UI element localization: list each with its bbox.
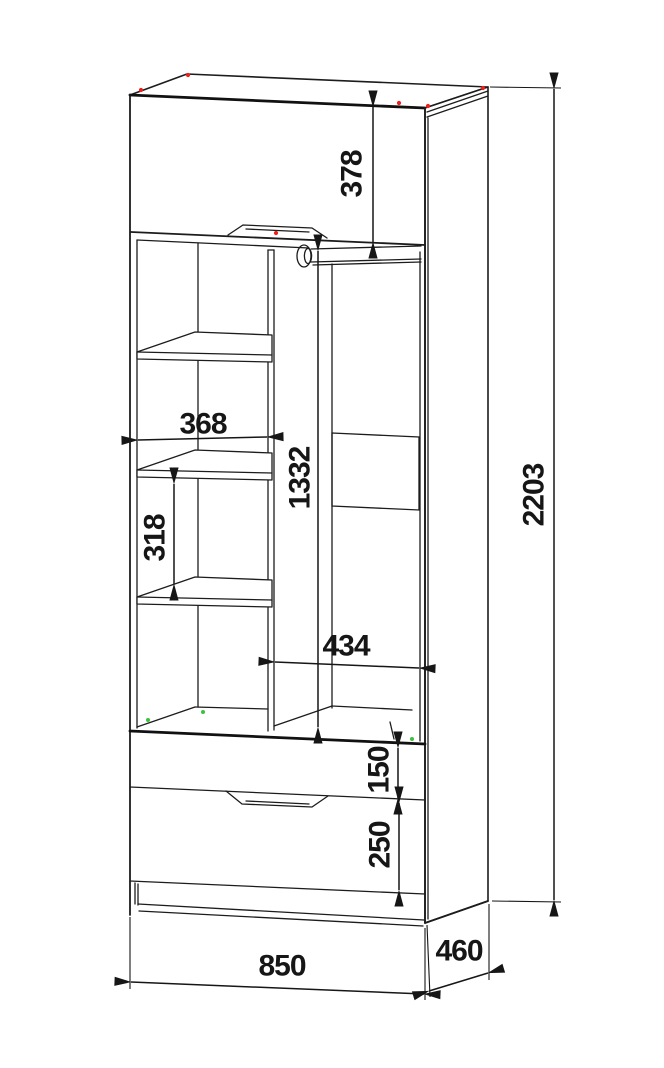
floor-left-back-edge (195, 707, 268, 709)
dim-shelf-width-label: 368 (179, 408, 226, 441)
drawer-2-handle-inner-line (246, 801, 309, 804)
floor-right-corner-line (390, 722, 394, 739)
corner-dot-4 (426, 104, 430, 108)
flap-door-bottom-edge (131, 232, 425, 245)
shelf-1-body (137, 332, 272, 362)
hanging-rail (297, 245, 421, 267)
dim-flap-height-label: 378 (336, 150, 369, 197)
floor-left-diagonal (137, 707, 195, 727)
corner-dot-3 (397, 101, 401, 105)
dim-overall-width-label: 850 (258, 950, 305, 983)
dim-overall-height-ext-bottom (492, 901, 561, 902)
corner-dot-2 (186, 73, 190, 77)
dim-overall-width-line (131, 982, 424, 994)
dim-hang-width-line (275, 662, 419, 668)
dim-drawer-2-height-label: 250 (364, 821, 397, 868)
dim-shelf-width: 368 (138, 408, 267, 441)
shelf-2-body (137, 450, 272, 480)
corner-dot-1 (139, 88, 143, 92)
dim-flap-height: 378 (336, 107, 374, 242)
dim-overall-height-label: 2203 (518, 463, 551, 526)
dim-overall-depth-line (429, 973, 488, 991)
dim-overall-depth-ext-front (427, 925, 430, 997)
floor-marker-dot-1 (201, 710, 205, 714)
dim-hang-width-label: 434 (322, 630, 370, 663)
dim-hang-height: 1332 (284, 251, 319, 727)
drawer-divider-edge (130, 731, 425, 744)
floor-right-diagonal (274, 706, 332, 726)
floor-right-back-edge (332, 706, 412, 710)
plinth-bottom-edge (139, 911, 423, 926)
rail-shadow-line (313, 262, 421, 265)
shelf-1 (137, 332, 272, 362)
dim-drawer-1-height: 150 (363, 746, 399, 798)
shelf-2 (137, 450, 272, 480)
plinth-top-edge (138, 904, 424, 920)
side-panel (425, 87, 488, 923)
top-panel (130, 74, 488, 108)
rail-bottom-line (311, 259, 421, 262)
side-panel-face (425, 87, 488, 923)
partition (268, 250, 274, 731)
floor-marker-dot-2 (146, 718, 150, 722)
handle-marker-dot (274, 231, 278, 235)
back-panel-stiffener (332, 433, 419, 510)
corner-dot-5 (481, 86, 485, 90)
dim-overall-height-ext-top (490, 87, 561, 88)
dim-overall-height: 2203 (490, 87, 561, 902)
floor-marker-dot-3 (410, 737, 414, 741)
dim-hang-width: 434 (275, 630, 419, 669)
drawing-canvas: 378 1332 368 318 434 150 250 2203 850 (0, 0, 664, 1068)
dim-shelf-gap: 318 (139, 484, 175, 584)
dim-drawer-2-height: 250 (364, 803, 400, 890)
shelf-3 (137, 577, 272, 607)
dim-hang-height-label: 1332 (284, 446, 317, 509)
shelf-3-body (137, 577, 272, 607)
dim-drawer-1-height-label: 150 (363, 746, 396, 793)
bottom-panel (130, 706, 425, 744)
wardrobe-dimension-drawing: 378 1332 368 318 434 150 250 2203 850 (0, 0, 664, 1068)
rail-top-line (311, 246, 421, 249)
drawer-2-bottom-edge (130, 881, 425, 894)
opening-top-edge (137, 240, 309, 248)
dim-overall-width: 850 (130, 917, 425, 1000)
dim-overall-depth-label: 460 (435, 935, 482, 968)
dim-shelf-gap-label: 318 (139, 514, 172, 561)
